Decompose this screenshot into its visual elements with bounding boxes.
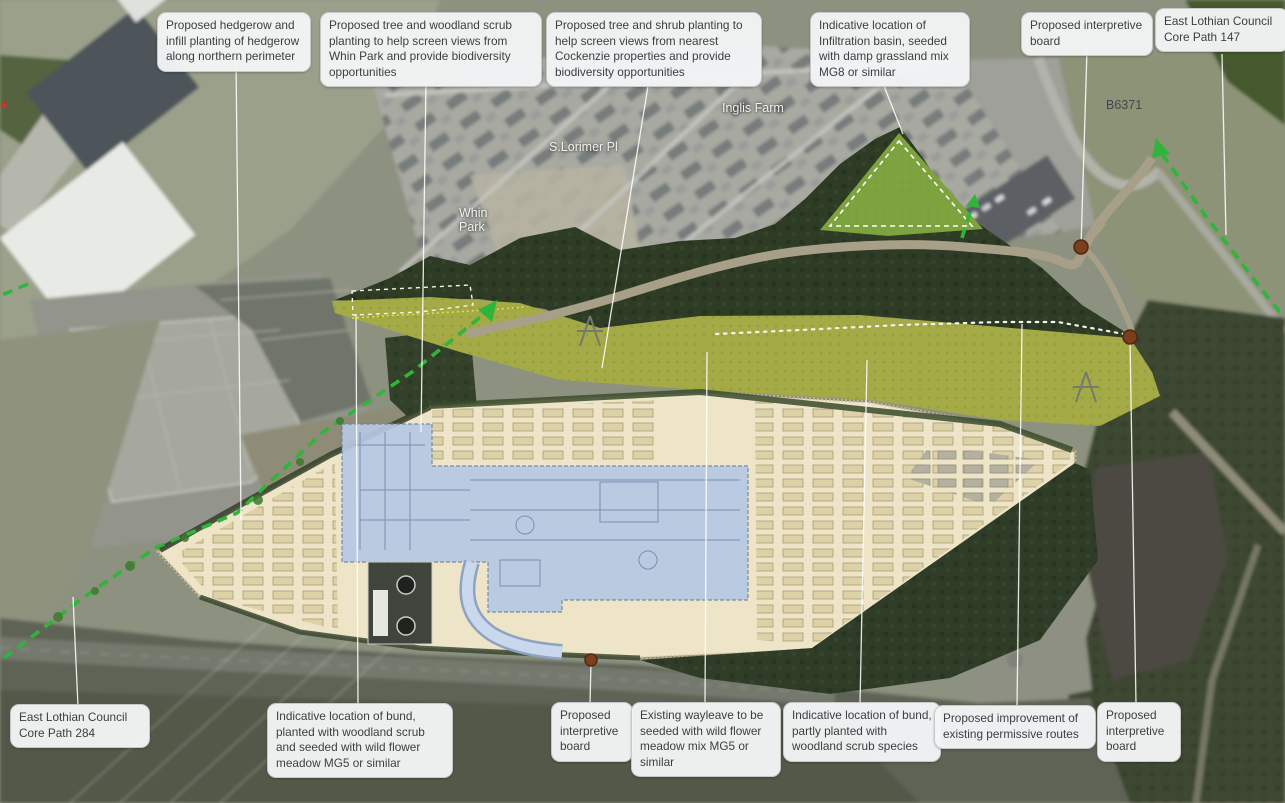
- callout-infiltration-basin: Indicative location of Infiltration basi…: [810, 12, 970, 87]
- place-label-s-lorimer-pl: S.Lorimer Pl: [549, 140, 618, 154]
- callout-hedgerow: Proposed hedgerow and infill planting of…: [157, 12, 311, 72]
- aerial-map: [0, 0, 1285, 803]
- place-label-inglis-farm: Inglis Farm: [722, 101, 784, 115]
- callout-woodland-scrub-whin-park: Proposed tree and woodland scrub plantin…: [320, 12, 542, 87]
- callout-tree-shrub-cockenzie: Proposed tree and shrub planting to help…: [546, 12, 762, 87]
- callout-permissive-routes: Proposed improvement of existing permiss…: [934, 705, 1096, 749]
- callout-interpretive-board-southwest: Proposed interpretive board: [551, 702, 633, 762]
- callout-wayleave-mg5: Existing wayleave to be seeded with wild…: [631, 702, 781, 777]
- place-label-b6371: B6371: [1106, 98, 1142, 112]
- callout-bund-partly-planted: Indicative location of bund, partly plan…: [783, 702, 941, 762]
- callout-bund-woodland-mg5: Indicative location of bund, planted wit…: [267, 703, 453, 778]
- existing-building: [368, 562, 432, 644]
- annotated-aerial-plan: Inglis Farm S.Lorimer Pl Whin Park B6371…: [0, 0, 1285, 803]
- callout-interpretive-board-north: Proposed interpretive board: [1021, 12, 1153, 56]
- red-marker: [1, 102, 7, 108]
- equipment-rows-center: [432, 400, 660, 462]
- place-label-whin-park: Whin Park: [459, 206, 487, 234]
- callout-interpretive-board-southeast: Proposed interpretive board: [1097, 702, 1181, 762]
- callout-core-path-147: East Lothian Council Core Path 147: [1155, 8, 1285, 52]
- callout-core-path-284: East Lothian Council Core Path 284: [10, 704, 150, 748]
